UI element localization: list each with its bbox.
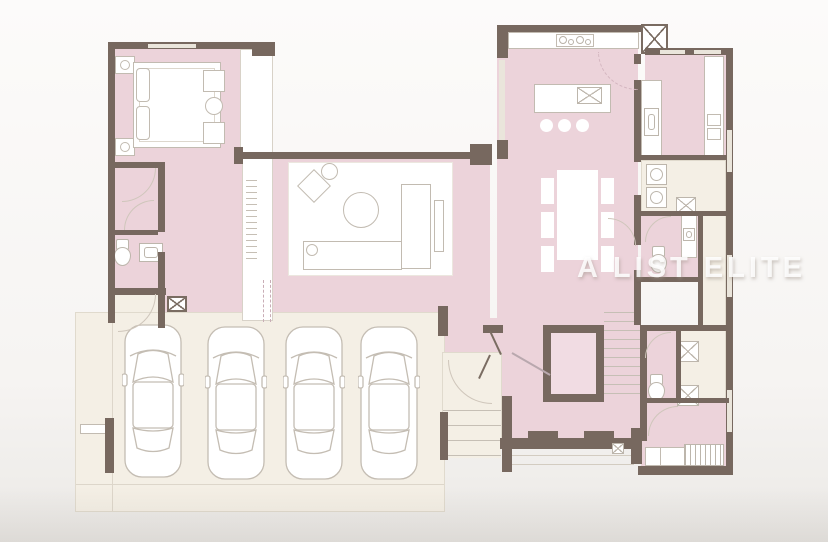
car-icon [358,324,420,482]
wall [638,466,733,475]
appliance-icon [707,114,721,126]
wall [158,168,165,232]
porch-notch [528,431,558,439]
floor-plan: A LIST ELITE [0,0,828,542]
lamp-icon [120,60,130,70]
burner-icon [559,36,567,44]
dryer-icon [646,187,667,208]
window [499,60,505,140]
window [727,390,732,432]
dining-chair [601,178,614,204]
wall [497,25,508,58]
sofa [303,241,402,270]
garage-inner-line [112,313,113,511]
wall [641,325,731,331]
wall [641,398,729,403]
wall [440,412,448,460]
sofa-side-table [434,200,444,252]
bed-pillow-line [660,448,661,465]
wall [158,288,165,328]
toilet-icon [648,374,665,401]
wall [641,211,726,216]
burner-icon [568,39,574,45]
wall [497,25,645,32]
bedroom-armchair [203,70,225,92]
wall [438,306,448,336]
pantry-sink-icon [644,108,659,136]
bedroom-side-table [205,97,223,115]
window [727,130,732,172]
dashed-line [263,280,264,322]
wall [252,42,275,56]
wall [483,325,503,333]
car-icon [122,322,184,480]
floor-shadow [0,487,828,542]
garage-side-step [80,424,106,434]
window [694,50,721,54]
bar-stool [576,119,589,132]
garage-door-track [105,418,114,473]
wall [631,428,642,464]
burner-icon [576,36,584,44]
wall [676,330,681,400]
round-coffee-table [343,192,379,228]
foyer-steps [443,410,501,458]
pillow [136,68,150,102]
lamp-icon [120,142,130,152]
wall [641,155,726,160]
shaft-box [167,296,187,312]
dining-chair [541,246,554,272]
porch-step-line [506,455,634,456]
porch-box [612,443,624,454]
closet-upper-strip [240,49,273,155]
wardrobe-hatch [684,444,724,466]
toilet-icon [114,239,131,266]
wall [108,288,115,323]
wall [112,230,158,235]
porch-notch [584,431,614,439]
wall [502,396,512,472]
wall [108,42,115,297]
bar-stool [558,119,571,132]
appliance-icon [707,128,721,140]
window [148,44,196,48]
washbasin-icon [683,228,695,241]
sofa-chaise [401,184,431,269]
wall [497,140,508,159]
cooktop [556,34,594,47]
floor-lamp-icon [321,163,338,180]
wall [634,80,641,162]
car-icon [205,324,267,482]
dining-chair [541,178,554,204]
porch-step-line [506,464,634,465]
extractor-hood-icon [577,87,602,104]
stair-core [551,333,596,394]
watermark: A LIST ELITE [577,252,806,285]
dashed-line [270,280,271,322]
wall [158,252,165,292]
washer-icon [646,164,667,185]
bedroom-armchair [203,122,225,144]
sofa-armrest [306,244,318,256]
window [660,50,685,54]
pantry-counter-right [704,56,724,158]
garage-apron-line [76,484,444,485]
wall [470,144,492,165]
bar-stool [540,119,553,132]
closet-hanging-clothes [246,180,257,260]
dining-table [557,170,598,260]
burner-icon [585,39,591,45]
wall [634,195,641,245]
pillow [136,106,150,140]
dining-chair [541,212,554,238]
wall [640,325,647,441]
car-icon [283,324,345,482]
wall [240,152,492,159]
